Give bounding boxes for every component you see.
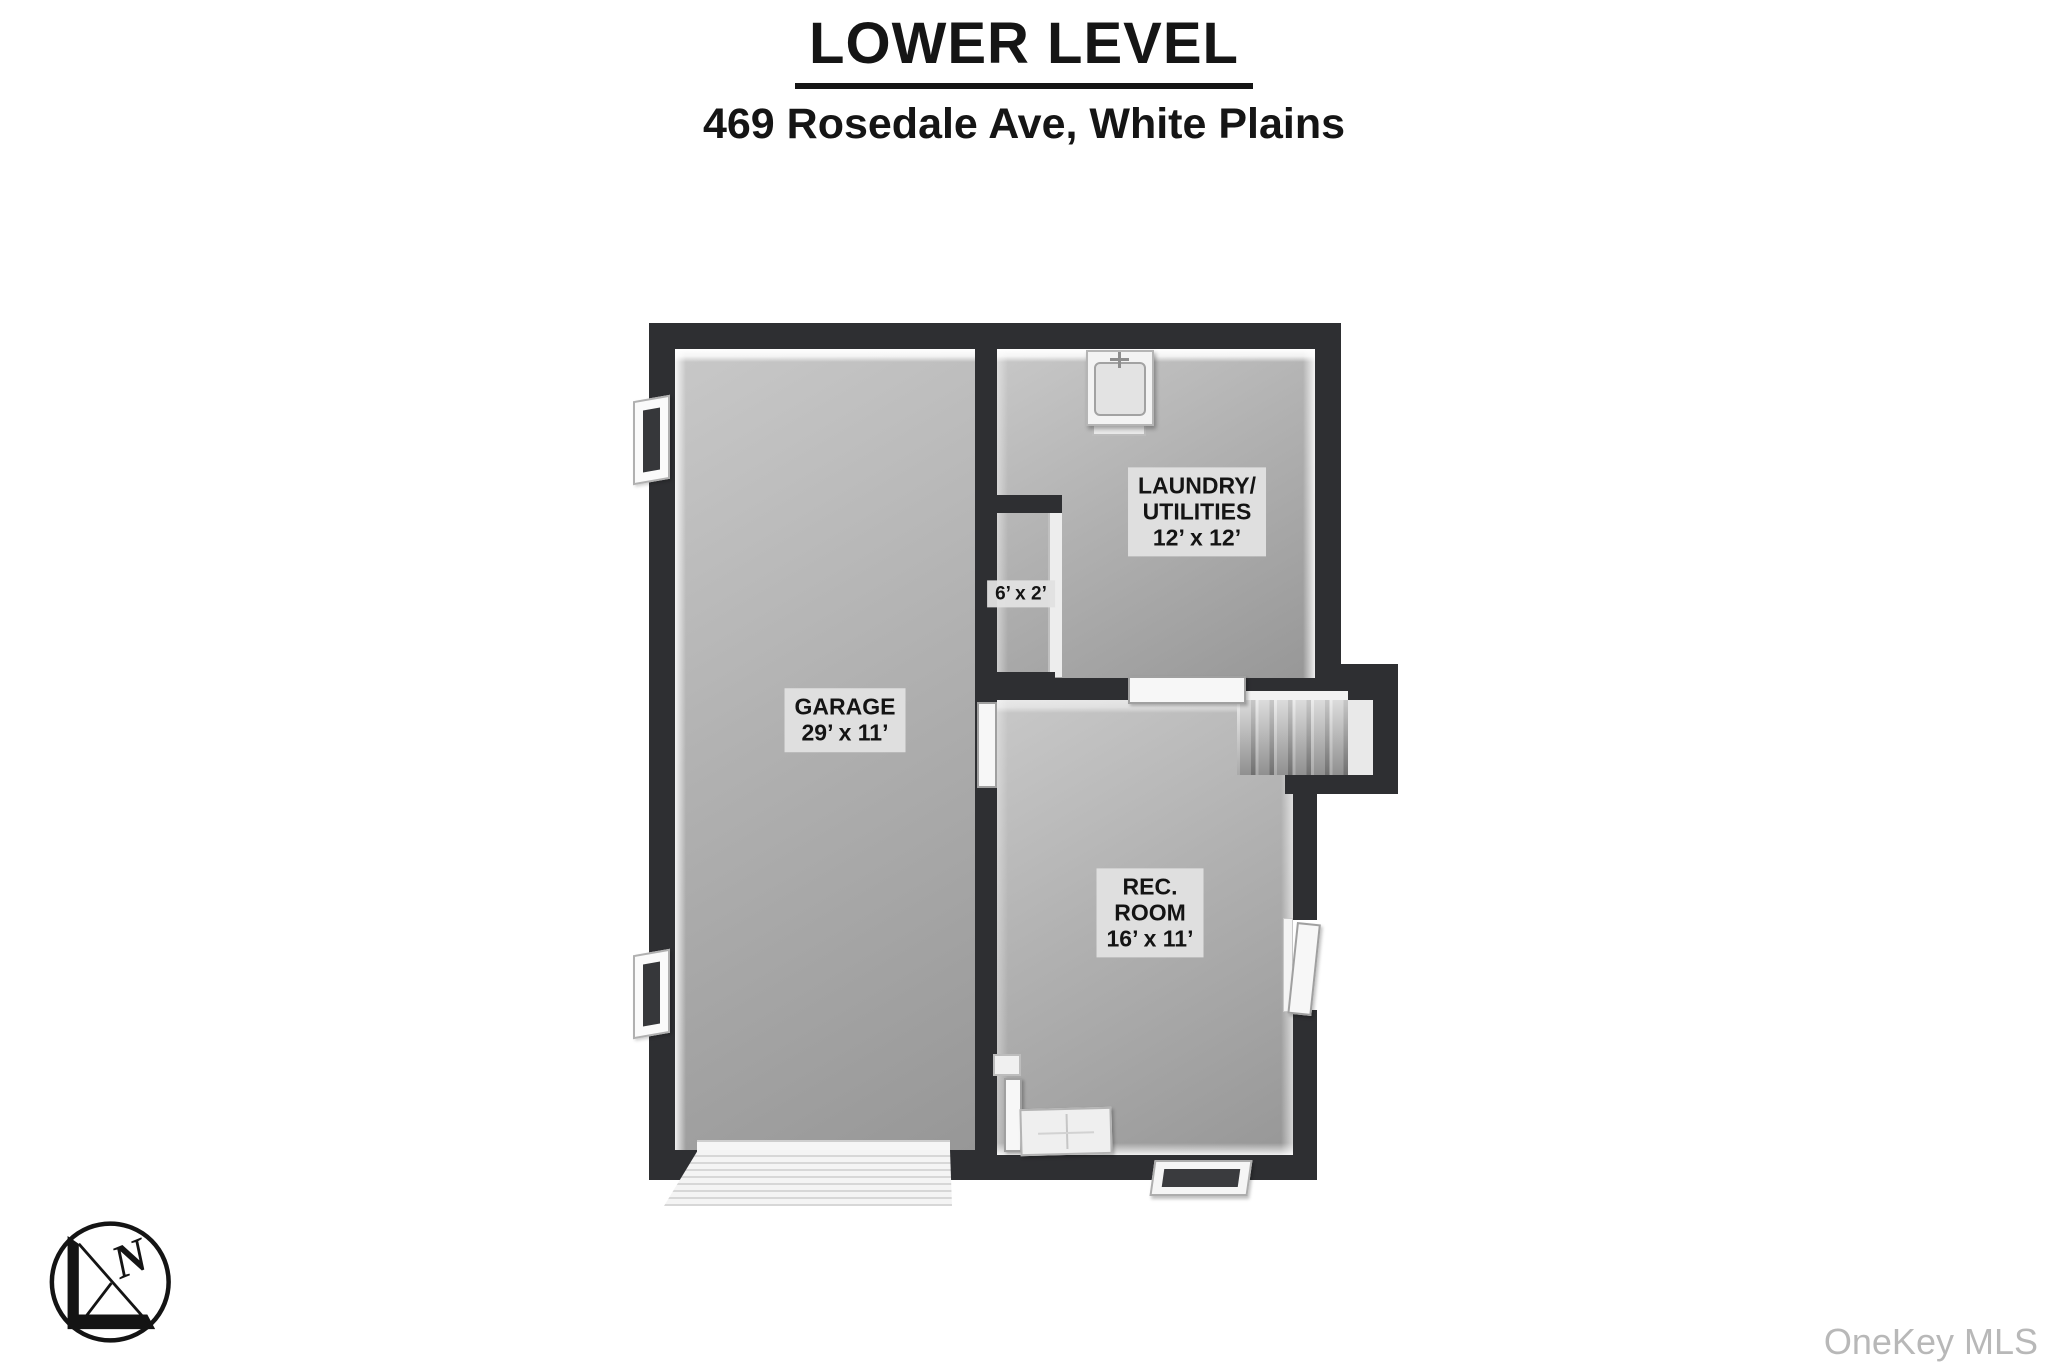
room-name: REC. — [1107, 874, 1194, 900]
stairs-icon — [1237, 700, 1348, 775]
room-name: GARAGE — [795, 694, 896, 720]
closet-wall-top — [997, 495, 1062, 513]
laundry-sink-icon — [1086, 350, 1154, 426]
room-name: LAUNDRY/ — [1138, 473, 1256, 499]
room-name: UTILITIES — [1138, 499, 1256, 525]
garage-label: GARAGE 29’ x 11’ — [785, 688, 906, 752]
laundry-south-wall — [997, 678, 1136, 700]
room-dims: 6’ x 2’ — [995, 583, 1047, 604]
room-dims: 29’ x 11’ — [795, 720, 896, 746]
window-icon — [633, 949, 670, 1040]
garage-door-icon — [660, 1150, 960, 1208]
stairs-shading — [1237, 700, 1348, 775]
rec-room-label: REC. ROOM 16’ x 11’ — [1097, 868, 1204, 957]
wall-highlight — [675, 349, 686, 1150]
wall-cutout — [1317, 794, 1341, 1180]
floor-plan: GARAGE 29’ x 11’ LAUNDRY/ UTILITIES 12’ … — [0, 0, 2048, 1365]
garage-rec-door-icon — [977, 702, 997, 788]
entry-steps-icon — [1019, 1107, 1112, 1156]
laundry-door-icon — [1128, 676, 1246, 704]
wall-highlight — [1303, 349, 1315, 678]
window-pane — [643, 408, 660, 473]
wall-highlight — [675, 349, 975, 362]
closet-label: 6’ x 2’ — [987, 580, 1055, 607]
sink-basin — [1094, 362, 1146, 416]
wall-highlight — [997, 349, 1008, 678]
room-dims: 12’ x 12’ — [1138, 525, 1256, 551]
sink-faucet — [1110, 358, 1129, 361]
room-dims: 16’ x 11’ — [1107, 926, 1194, 952]
stairwell-wall-bottom — [1285, 775, 1398, 794]
laundry-label: LAUNDRY/ UTILITIES 12’ x 12’ — [1128, 467, 1266, 556]
wall-stub — [993, 1054, 1021, 1076]
basement-window-icon — [1149, 1160, 1252, 1196]
floor-plan-page: LOWER LEVEL 469 Rosedale Ave, White Plai… — [0, 0, 2048, 1365]
window-icon — [633, 395, 670, 486]
watermark: OneKey MLS — [1824, 1321, 2038, 1363]
window-pane — [643, 962, 660, 1027]
wall-highlight — [997, 349, 1315, 362]
stair-landing — [1348, 700, 1373, 775]
window-pane — [1162, 1169, 1241, 1187]
compass-icon: N — [40, 1218, 176, 1346]
room-name: ROOM — [1107, 900, 1194, 926]
